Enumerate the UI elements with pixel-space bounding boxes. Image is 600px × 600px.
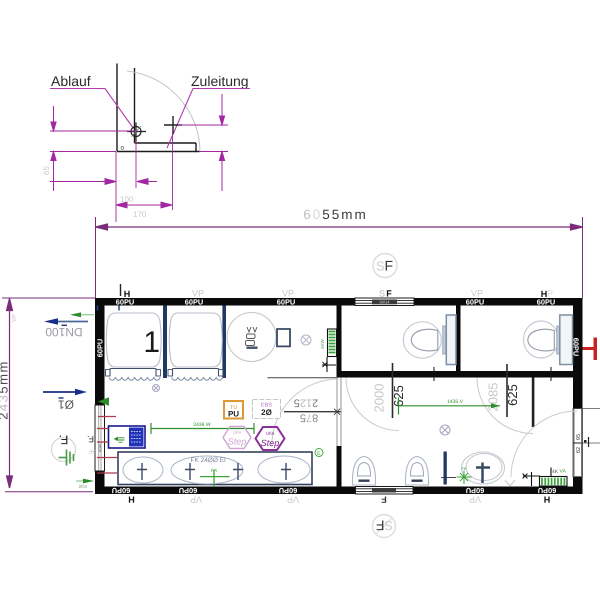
svg-text:VP: VP <box>11 314 18 322</box>
svg-text:60PU: 60PU <box>179 486 198 495</box>
svg-text:170: 170 <box>133 210 147 219</box>
svg-text:FR: FR <box>211 468 218 473</box>
svg-text:VP: VP <box>469 495 481 505</box>
svg-text:625: 625 <box>505 384 520 406</box>
svg-text:60PU: 60PU <box>112 486 131 495</box>
svg-text:60PU: 60PU <box>279 486 298 495</box>
svg-text:H: H <box>124 289 131 299</box>
svg-text:VP: VP <box>287 495 299 505</box>
svg-text:F: F <box>376 518 385 534</box>
svg-text:65: 65 <box>42 166 51 175</box>
svg-text:FK 24ØØ El: FK 24ØØ El <box>190 457 226 464</box>
svg-text:2000: 2000 <box>372 384 387 413</box>
svg-text:PU: PU <box>228 410 239 419</box>
svg-text:UFA: UFA <box>266 431 275 436</box>
svg-text:60PU: 60PU <box>538 486 557 495</box>
svg-text:875: 875 <box>300 412 318 424</box>
svg-text:VP: VP <box>471 289 483 299</box>
svg-text:62: 62 <box>576 447 582 453</box>
svg-text:60PU: 60PU <box>537 298 556 307</box>
svg-text:Step: Step <box>261 438 280 448</box>
svg-text:VP: VP <box>190 495 202 505</box>
svg-text:Ø50: Ø50 <box>79 484 88 489</box>
svg-text:60PU: 60PU <box>466 298 485 307</box>
svg-text:P: P <box>547 289 553 299</box>
svg-text:60PU: 60PU <box>185 298 204 307</box>
svg-text:4KW: 4KW <box>320 338 325 349</box>
svg-text:H: H <box>128 495 135 505</box>
svg-text:E: E <box>317 451 321 457</box>
svg-text:2125: 2125 <box>294 397 319 409</box>
svg-text:60PU: 60PU <box>96 339 105 358</box>
svg-text:1: 1 <box>143 326 160 359</box>
svg-text:VP: VP <box>282 289 294 299</box>
svg-text:F: F <box>386 289 392 299</box>
svg-text:H: H <box>544 495 551 505</box>
svg-text:F: F <box>385 258 394 274</box>
svg-text:1435 V: 1435 V <box>447 399 464 405</box>
svg-text:3F: 3F <box>88 448 95 455</box>
svg-text:Ablauf: Ablauf <box>51 73 91 89</box>
svg-text:DN100: DN100 <box>45 325 83 339</box>
svg-text:100: 100 <box>120 195 134 204</box>
svg-text:60PU: 60PU <box>98 442 103 452</box>
svg-text:F.: F. <box>59 432 69 446</box>
svg-text:6055mm: 6055mm <box>303 207 368 222</box>
svg-text:S: S <box>379 289 385 299</box>
svg-text:UFA: UFA <box>233 430 242 435</box>
svg-text:FK: FK <box>461 466 466 471</box>
svg-text:60PU: 60PU <box>277 298 296 307</box>
svg-text:60/14: 60/14 <box>379 300 390 305</box>
svg-text:VA: VA <box>560 469 567 475</box>
svg-text:Ø1: Ø1 <box>58 397 74 411</box>
svg-text:60PU: 60PU <box>466 486 485 495</box>
svg-text:F.: F. <box>87 434 94 444</box>
svg-text:95: 95 <box>576 434 582 440</box>
svg-text:Zuleitung: Zuleitung <box>191 73 249 89</box>
svg-text:4K: 4K <box>552 469 559 475</box>
svg-text:F: F <box>381 495 387 505</box>
svg-text:o: o <box>121 145 125 152</box>
svg-text:60PU: 60PU <box>116 298 135 307</box>
svg-text:2Ø: 2Ø <box>261 408 272 417</box>
svg-text:VP: VP <box>192 289 204 299</box>
svg-text:Step: Step <box>228 437 247 447</box>
svg-text:2436 W: 2436 W <box>193 422 211 428</box>
